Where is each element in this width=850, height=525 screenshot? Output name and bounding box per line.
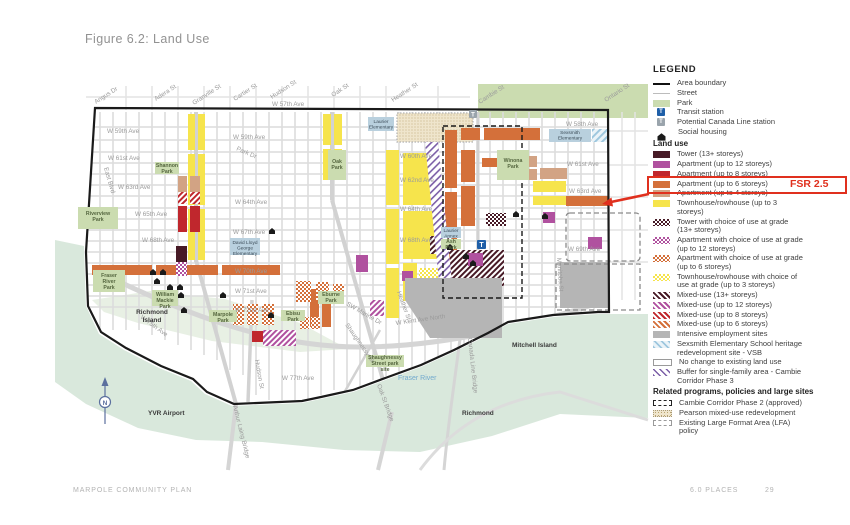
landuse-tower-blocks <box>176 246 187 262</box>
street-label-w57: W 57th Ave <box>272 101 305 108</box>
street-label-east-blvd: East Blvd <box>102 167 116 195</box>
legend-item-mixed13: Mixed-use (13+ storeys) <box>653 291 848 300</box>
street-label-manitoba: Manitoba St <box>555 258 564 292</box>
park-swatch <box>653 100 670 107</box>
ebisu-park-label: EbisuPark <box>286 311 300 323</box>
apartment12-swatch <box>653 161 670 168</box>
legend-item-buffer: Buffer for single-family area - Cambie C… <box>653 368 848 385</box>
oak-park-label: OakPark <box>331 159 342 171</box>
mixeduse6-swatch <box>653 321 670 328</box>
fsr-annotation-box: FSR 2.5 <box>647 176 847 194</box>
footer-plan-title: MARPOLE COMMUNITY PLAN <box>73 487 192 494</box>
street-label-oak: Oak St <box>330 82 350 98</box>
legend-item-park: Park <box>653 99 848 108</box>
fraser-river-park-label: FraserRiverPark <box>101 273 117 291</box>
svg-text:T: T <box>479 242 484 249</box>
ash-park-label: AshPark <box>445 239 456 251</box>
mixeduse13-swatch <box>653 292 670 299</box>
legend-item-townhouse: Townhouse/rowhouse (up to 3 storeys) <box>653 199 848 216</box>
north-label: N <box>103 400 108 407</box>
street-label-w60: W 60th Ave <box>400 153 433 160</box>
street-label-w64b: W 64th Ave <box>400 206 433 213</box>
townhouse-choice-swatch <box>653 274 670 281</box>
apartment12-choice-swatch <box>653 237 670 244</box>
street-label-w59a: W 59th Ave <box>107 128 140 135</box>
street-label-w59b: W 59th Ave <box>233 134 266 141</box>
footer-section: 6.0 PLACES <box>690 487 738 494</box>
landuse-choice-purple-blocks <box>176 262 187 276</box>
townhouse-swatch <box>653 200 670 207</box>
fsr-annotation-label: FSR 2.5 <box>790 178 829 190</box>
sexsmith-heritage-site <box>592 129 608 142</box>
legend-item-street: Street <box>653 89 848 98</box>
street-label-w71: W 71st Ave <box>235 288 267 295</box>
legend-item-apt6: Apartment (up to 6 storeys) FSR 2.5 <box>653 180 848 189</box>
street-label-w72: W 72nd Ave <box>235 307 269 314</box>
legend-item-lfa: Existing Large Format Area (LFA) policy <box>653 419 848 436</box>
legend-item-apt12: Apartment (up to 12 storeys) <box>653 160 848 169</box>
street-label-w68b: W 68th Ave <box>400 237 433 244</box>
street-label-park-dr: Park Dr <box>235 145 257 160</box>
legend-item-pearson: Pearson mixed-use redevelopment <box>653 409 848 418</box>
tower-swatch <box>653 151 670 158</box>
street-swatch <box>653 93 670 95</box>
street-label-w58: W 58th Ave <box>566 121 599 128</box>
street-label-heather-n: Heather St <box>390 81 419 103</box>
no-change-swatch <box>653 359 672 366</box>
street-label-cartier: Cartier St <box>232 82 258 102</box>
lfa-outline-north <box>566 213 640 261</box>
street-label-w69: W 69th Ave <box>568 246 601 253</box>
legend-item-employment: Intensive employment sites <box>653 330 848 339</box>
fraser-river-label: Fraser River <box>398 375 437 382</box>
tower-choice-swatch <box>653 219 670 226</box>
mitchell-island-label: Mitchell Island <box>512 342 557 349</box>
street-label-w77: W 77th Ave <box>282 375 315 382</box>
employment-swatch <box>653 331 670 338</box>
legend-item-transit-station: T Transit station <box>653 108 848 117</box>
svg-text:T: T <box>471 112 475 118</box>
area-boundary-swatch <box>653 83 670 86</box>
cambie-phase2-swatch <box>653 400 672 406</box>
social-housing-icon <box>657 128 667 136</box>
legend-item-apt6-choice: Apartment with choice of use at grade (u… <box>653 254 848 271</box>
transit-station-icon: T <box>657 108 665 116</box>
legend-item-mixed12: Mixed-use (up to 12 storeys) <box>653 301 848 310</box>
transit-station-icon: T <box>477 240 486 249</box>
legend-item-mixed6: Mixed-use (up to 6 storeys) <box>653 320 848 329</box>
street-label-angus: Angus Dr <box>93 86 119 106</box>
sexsmith-site-swatch <box>653 341 670 348</box>
richmond-label: Richmond <box>462 410 494 417</box>
legend-item-tower: Tower (13+ storeys) <box>653 150 848 159</box>
figure-page: Figure 6.2: Land Use <box>0 0 850 525</box>
street-label-w67: W 67th Ave <box>233 229 266 236</box>
legend-title: LEGEND <box>653 64 848 75</box>
yvr-airport-label: YVR Airport <box>148 410 185 417</box>
street-label-w63b: W 63rd Ave <box>569 188 602 195</box>
street-label-w65: W 65th Ave <box>135 211 168 218</box>
related-programs-header: Related programs, policies and large sit… <box>653 388 848 397</box>
street-label-hudson-s: Hudson St <box>253 359 265 389</box>
legend-item-mixed8: Mixed-use (up to 8 storeys) <box>653 311 848 320</box>
street-label-w64a: W 64th Ave <box>235 199 268 206</box>
laurier-annex-label: LaurierAnnex <box>444 228 459 240</box>
landuse-choice-maroon-blocks <box>486 213 506 226</box>
legend: LEGEND Area boundary Street Park T Trans… <box>653 64 848 437</box>
legend-item-townhouse-choice: Townhouse/rowhouse with choice of use at… <box>653 273 848 290</box>
footer-page-number: 29 <box>765 487 775 494</box>
buffer-swatch <box>653 369 670 376</box>
lfa-swatch <box>653 420 672 426</box>
legend-item-sexsmith-site: Sexsmith Elementary School heritage rede… <box>653 340 848 357</box>
street-label-w61a: W 61st Ave <box>108 155 140 162</box>
legend-item-apt12-choice: Apartment with choice of use at grade (u… <box>653 236 848 253</box>
legend-item-potential-station: T Potential Canada Line station <box>653 118 848 127</box>
mixeduse12-swatch <box>653 302 670 309</box>
legend-item-tower-choice: Tower with choice of use at grade (13+ s… <box>653 218 848 235</box>
potential-station-icon: T <box>657 118 665 126</box>
pearson-swatch <box>653 410 672 417</box>
legend-item-no-change: No change to existing land use <box>653 358 848 367</box>
land-use-header: Land use <box>653 140 848 149</box>
legend-item-area-boundary: Area boundary <box>653 79 848 88</box>
street-label-adera: Adera St <box>153 83 178 102</box>
mixeduse8-swatch <box>653 312 670 319</box>
street-label-granville: Granville St <box>191 83 222 107</box>
legend-item-social-housing: Social housing <box>653 128 848 137</box>
sexsmith-elementary-label: SexsmithElementary <box>558 130 583 142</box>
street-label-w70: W 70th Ave <box>235 268 268 275</box>
apartment6-choice-swatch <box>653 255 670 262</box>
street-label-w63a: W 63rd Ave <box>118 184 151 191</box>
legend-item-cambie-phase2: Cambie Corridor Phase 2 (approved) <box>653 399 848 408</box>
street-label-w68a: W 68th Ave <box>142 237 175 244</box>
potential-station-icon: T <box>469 110 477 118</box>
street-label-w61b: W 61st Ave <box>567 161 599 168</box>
street-label-w62: W 62nd Ave <box>400 177 434 184</box>
